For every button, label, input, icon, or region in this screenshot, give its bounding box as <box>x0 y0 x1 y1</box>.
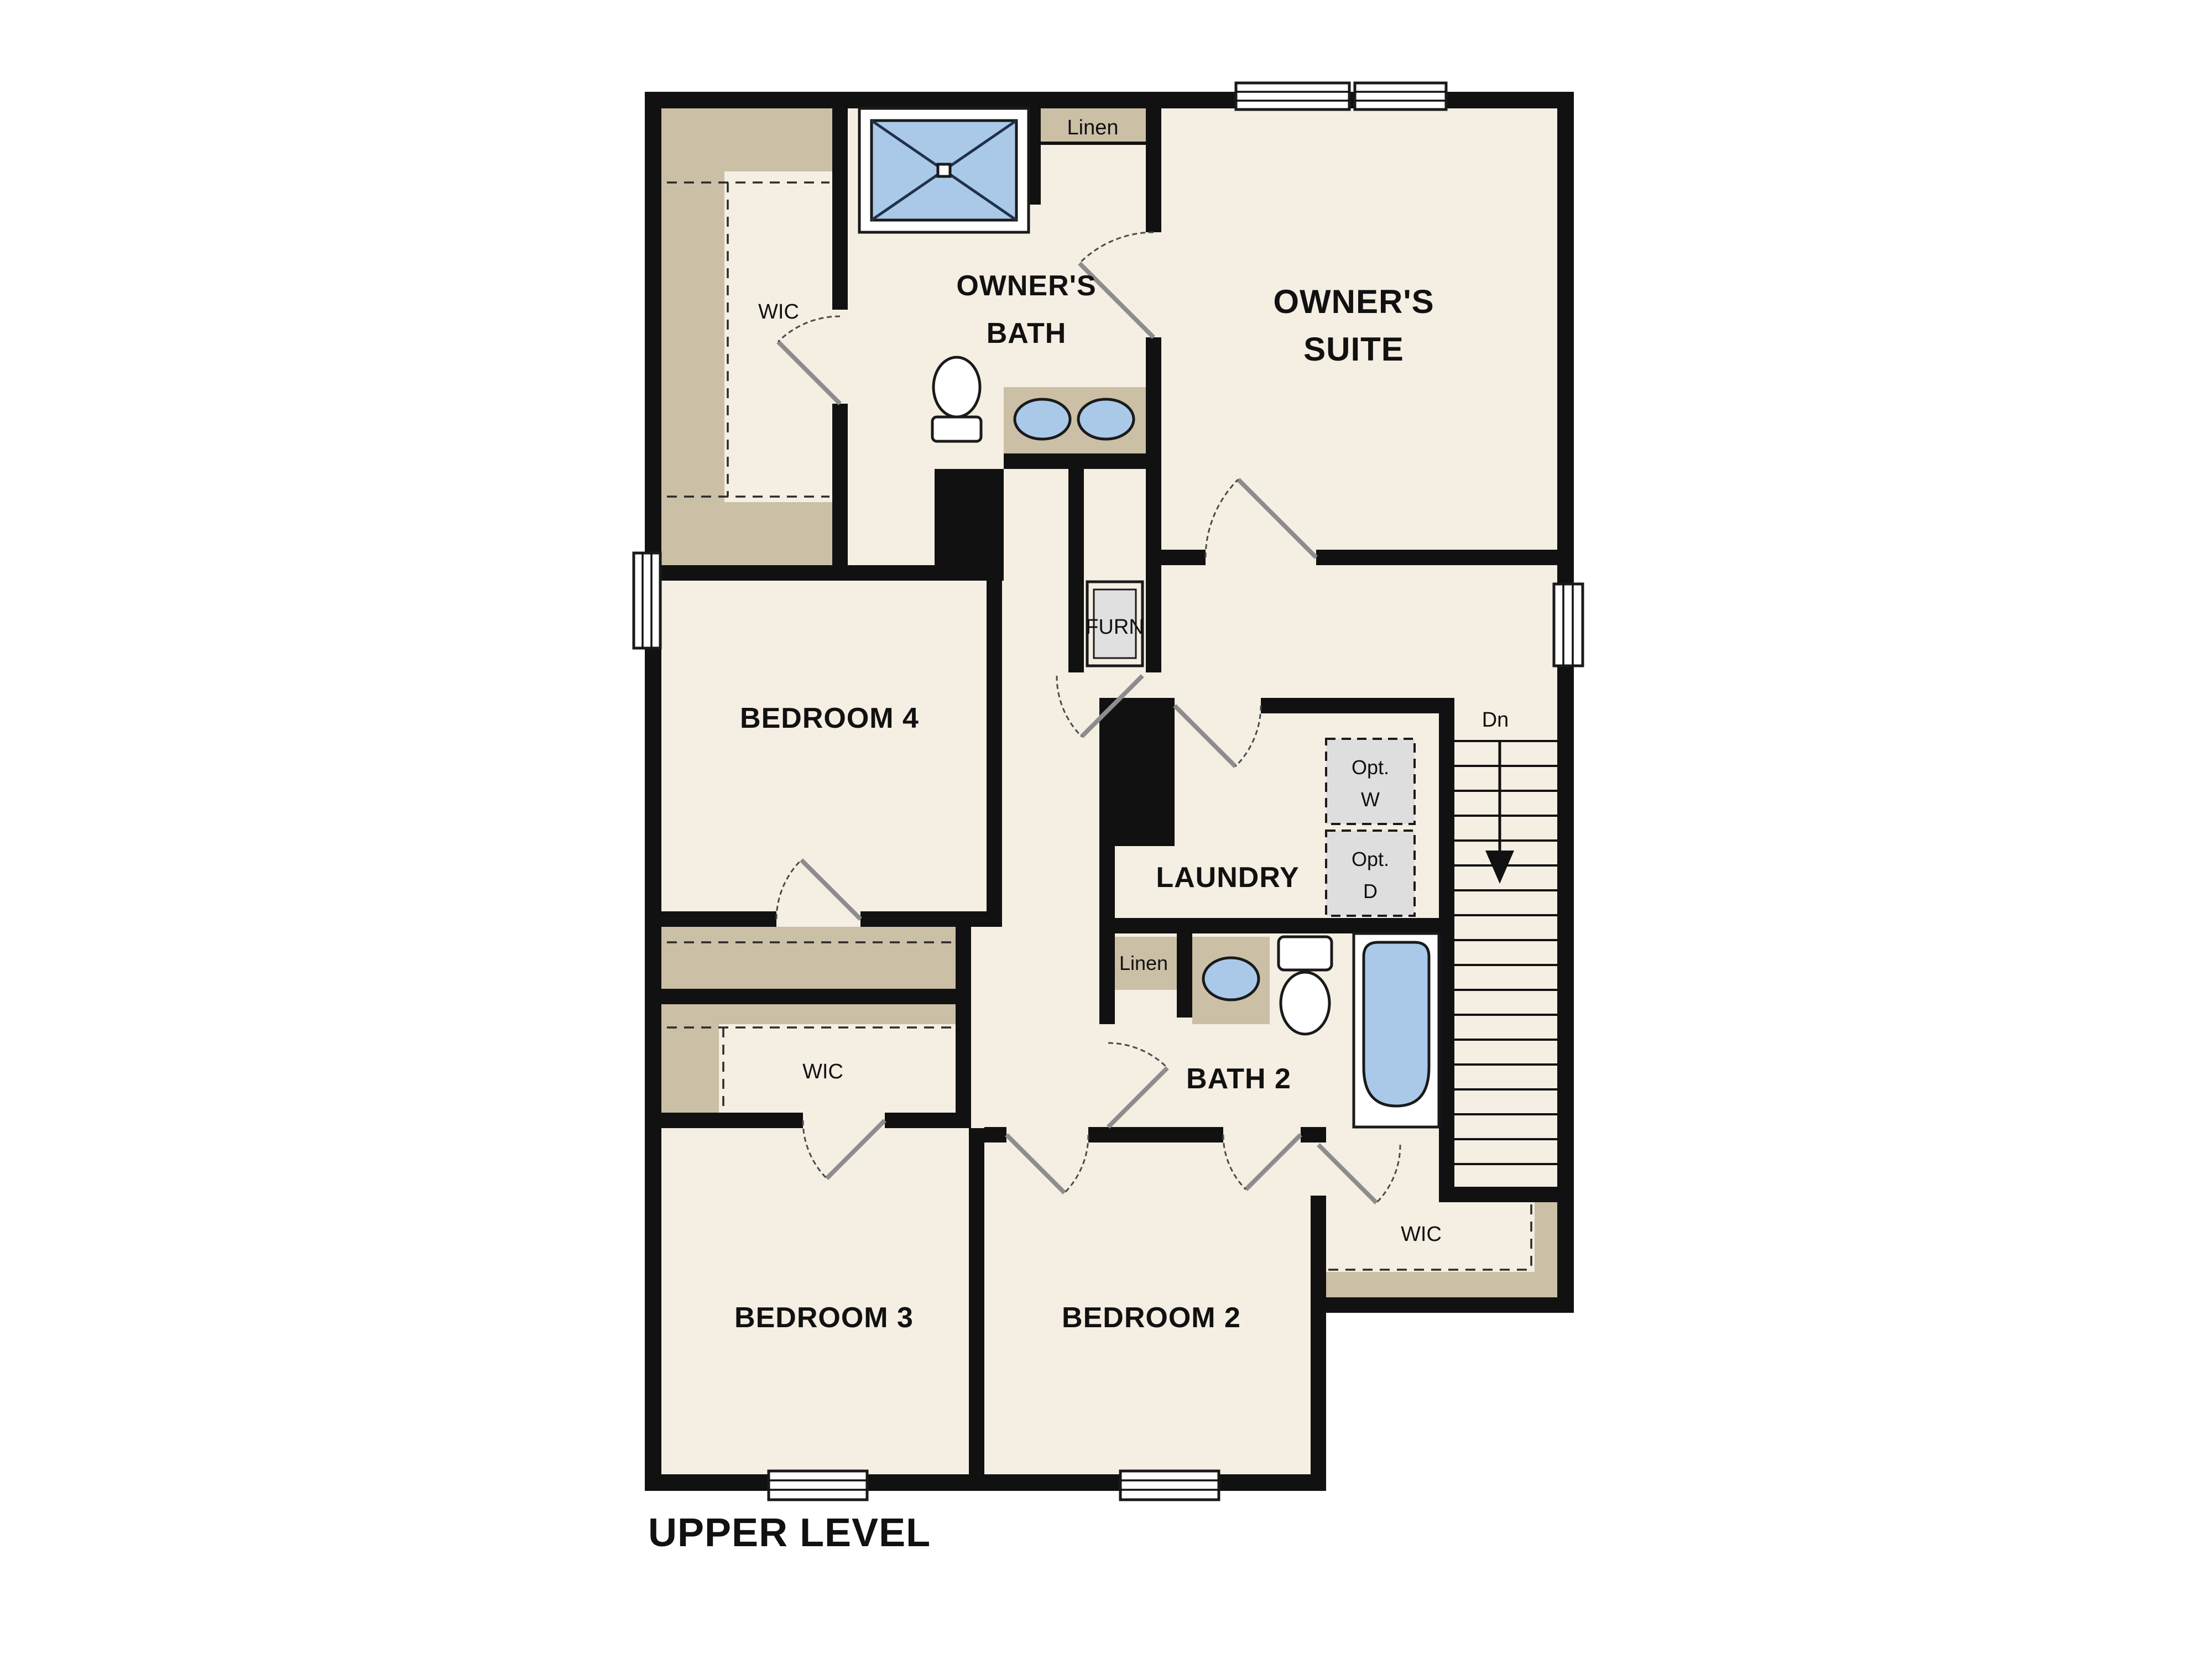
hall-wall-bottom-a <box>984 1127 1006 1142</box>
bath2-label: BATH 2 <box>1186 1063 1291 1095</box>
bedroom4-label: BEDROOM 4 <box>740 702 919 734</box>
bath2-toilet <box>1279 937 1332 1034</box>
suite-wall-left-upper <box>1146 108 1161 232</box>
owners-suite-label-line1: OWNER'S <box>1273 283 1434 320</box>
vanity-wall-under <box>1004 453 1146 469</box>
stairs-down-label: Dn <box>1482 708 1509 732</box>
opt-washer-label-line2: W <box>1361 788 1380 811</box>
bedroom4-wall-bottom-left <box>661 911 776 927</box>
bedroom2-label: BEDROOM 2 <box>1062 1302 1241 1334</box>
bedroom4-wall-right <box>987 581 1002 927</box>
bedroom2-wic-tan-bottom <box>1326 1272 1557 1297</box>
wic2-outer-wall-bottom <box>1311 1297 1574 1313</box>
hall-wall-bottom-b <box>1088 1127 1223 1142</box>
laundry-wall-top-right <box>1261 698 1454 713</box>
closet-strip-tan <box>661 927 956 989</box>
linen-wall-bottom <box>1041 142 1146 145</box>
furn-wall-left <box>1068 469 1084 672</box>
owners-bath-toilet <box>932 357 981 441</box>
bedroom2-3-divider <box>969 1128 984 1474</box>
laundry-wall-bottom <box>1099 918 1454 933</box>
bedroom2-wall-right <box>1311 1196 1326 1491</box>
suite-wall-bottom-right <box>1316 550 1574 565</box>
furnace-label: FURN <box>1086 615 1144 639</box>
bedroom3-wic-wall-right <box>956 911 971 1128</box>
owners-bath-label-line2: BATH <box>987 317 1067 349</box>
closet-strip-wall-bottom <box>661 989 971 1004</box>
chase-laundry <box>1099 713 1175 846</box>
owners-bath-sink-right <box>1078 399 1134 439</box>
owners-wic-label: WIC <box>758 300 799 324</box>
stairs-wall-left <box>1439 713 1454 1202</box>
outer-wall-left <box>645 92 661 1491</box>
owners-wic-wall-right-upper <box>832 108 848 310</box>
laundry-label: LAUNDRY <box>1156 862 1299 894</box>
shower-drain <box>938 164 950 176</box>
owners-bath-sink-left <box>1015 399 1070 439</box>
bedroom2-window <box>1120 1471 1219 1500</box>
suite-wall-bottom-left <box>1161 550 1206 565</box>
bedroom3-wic-tan-top <box>719 1004 956 1024</box>
suite-window-right <box>1355 83 1446 109</box>
bath2-linen-label: Linen <box>1119 952 1168 974</box>
bedroom3-wic-tan-left <box>661 1004 719 1113</box>
upper-linen-label: Linen <box>1067 116 1119 139</box>
owners-wic-tan-bottom <box>724 502 832 565</box>
bath2-tub <box>1354 933 1439 1127</box>
bath2-linen-wall-right <box>1177 933 1192 1018</box>
bedroom3-wic-wall-bottom-right <box>885 1113 971 1128</box>
floorplan-canvas: OWNER'S SUITE OWNER'S BATH BEDROOM 4 BED… <box>0 0 2212 1659</box>
bedroom4-window <box>634 553 660 648</box>
bedroom3-label: BEDROOM 3 <box>734 1302 914 1334</box>
optional-dryer-box <box>1326 831 1415 916</box>
outer-wall-right <box>1557 92 1574 1313</box>
bedroom3-window <box>769 1471 867 1500</box>
outer-wall-bottom <box>645 1474 1326 1491</box>
stairs-wall-bottom <box>1439 1187 1574 1202</box>
optional-washer-box <box>1326 739 1415 824</box>
owners-wic-wall-right-lower <box>832 404 848 565</box>
level-title: UPPER LEVEL <box>648 1511 931 1555</box>
shower <box>859 108 1029 232</box>
bedroom3-wic-label: WIC <box>802 1060 843 1083</box>
owners-wic-tan-top <box>724 108 832 171</box>
owners-suite-label-line2: SUITE <box>1303 331 1404 368</box>
floorplan-drawing: OWNER'S SUITE OWNER'S BATH BEDROOM 4 BED… <box>0 0 2212 1659</box>
bath2-sink <box>1203 958 1259 1000</box>
hall-window-right <box>1554 584 1583 666</box>
bedroom2-wic-label: WIC <box>1401 1223 1442 1246</box>
bedroom3-wic-wall-bottom-left <box>661 1113 803 1128</box>
suite-wall-left-lower <box>1146 337 1161 672</box>
opt-dryer-label-line2: D <box>1363 880 1378 902</box>
opt-washer-label-line1: Opt. <box>1352 756 1389 779</box>
suite-window-left <box>1236 83 1349 109</box>
bedroom4-wall-top <box>645 565 1002 581</box>
opt-dryer-label-line1: Opt. <box>1352 848 1389 870</box>
chase-owners-bath <box>935 469 1004 581</box>
owners-bath-label-line1: OWNER'S <box>956 270 1096 302</box>
hall-wall-bottom-c <box>1301 1127 1326 1142</box>
